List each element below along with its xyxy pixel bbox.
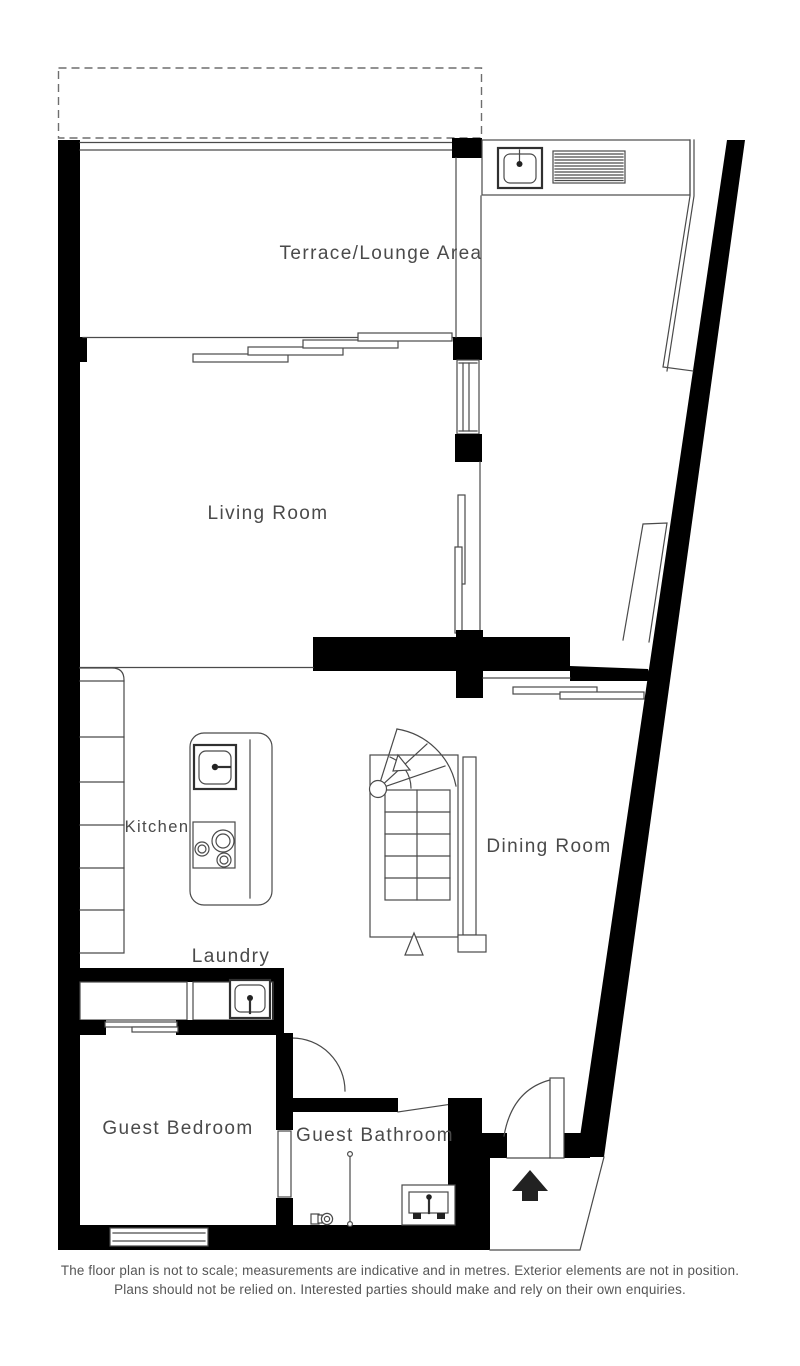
vestibule-outline — [490, 1157, 604, 1250]
balustrade-end-post — [452, 138, 482, 158]
sink-icon — [230, 980, 270, 1018]
wardrobe-outline — [80, 982, 187, 1020]
guest-bedroom: Guest Bedroom — [102, 1033, 293, 1246]
wall-tab — [80, 337, 87, 362]
pocket-door-leaf — [278, 1131, 291, 1197]
toilet-icon — [311, 1213, 333, 1224]
disclaimer: The floor plan is not to scale; measurem… — [0, 1262, 800, 1299]
mid-wall-column — [456, 630, 483, 698]
grill-icon — [553, 151, 625, 183]
mid-walls — [80, 523, 667, 699]
guest-bedroom-label: Guest Bedroom — [102, 1118, 253, 1139]
door-swing-arc — [504, 1080, 550, 1136]
bathroom-top-wall — [288, 1098, 398, 1112]
hallway — [292, 1038, 345, 1091]
sliding-door-panels — [513, 687, 644, 699]
winder-staircase — [370, 729, 487, 955]
living-room-label: Living Room — [207, 503, 328, 524]
disclaimer-line-2: Plans should not be relied on. Intereste… — [0, 1281, 800, 1300]
floor-plan-page: Terrace/Lounge Area Living Ro — [0, 0, 800, 1366]
stair-rail-foot — [458, 935, 486, 952]
winder-arc — [397, 729, 456, 786]
sink-icon — [498, 148, 542, 188]
kitchen-label: Kitchen — [125, 818, 190, 836]
guest-bathroom: Guest Bathroom — [288, 1098, 482, 1226]
dining-room: Dining Room — [370, 729, 612, 955]
laundry-label: Laundry — [192, 946, 270, 967]
kitchen: Kitchen — [80, 668, 272, 953]
wardrobe-sliding-doors — [105, 1022, 178, 1032]
wardrobe-bottom-wall — [58, 1020, 106, 1035]
entry-left-wall — [470, 1158, 490, 1250]
laundry: Laundry — [58, 946, 284, 1035]
terrace-label: Terrace/Lounge Area — [280, 243, 483, 264]
wall-block — [455, 434, 482, 462]
disclaimer-line-1: The floor plan is not to scale; measurem… — [0, 1262, 800, 1281]
wall-block — [453, 337, 482, 360]
entry-door-leaf — [550, 1078, 564, 1158]
window — [457, 360, 479, 434]
kitchen-counter-divisions — [80, 681, 124, 910]
terrace-dashed-boundary — [59, 68, 482, 138]
entrance-arrow-up-icon — [512, 1170, 548, 1201]
floor-plan-drawing: Terrace/Lounge Area Living Ro — [0, 0, 800, 1260]
shower-rail-icon — [348, 1152, 353, 1227]
door-swing-arc — [292, 1038, 345, 1091]
sink-icon — [194, 745, 236, 789]
entry-wall-block — [470, 1133, 507, 1158]
hob-3-burner-icon — [193, 822, 235, 868]
living-room: Living Room — [80, 158, 482, 637]
mid-wall-band-right — [570, 666, 652, 681]
window — [110, 1228, 208, 1246]
wardrobe-bottom-wall — [176, 1020, 284, 1035]
bedroom-bathroom-divider — [276, 1198, 293, 1228]
entry-wall-block — [562, 1133, 590, 1158]
vanity-basin-icon — [402, 1185, 455, 1225]
sliding-door-panels — [455, 495, 465, 633]
terrace-area: Terrace/Lounge Area — [59, 68, 695, 371]
newel-post — [370, 781, 387, 798]
laundry-right-wall — [272, 982, 284, 1022]
mid-wall-band — [313, 637, 570, 671]
kitchen-island — [190, 733, 272, 905]
terrace-glass-edge — [663, 140, 693, 371]
winder-rays — [378, 729, 445, 789]
stair-rail — [463, 757, 476, 935]
dining-room-label: Dining Room — [486, 836, 611, 857]
entrance — [470, 1078, 604, 1250]
right-slanted-wall — [577, 140, 745, 1157]
guest-bathroom-label: Guest Bathroom — [296, 1125, 454, 1146]
stair-direction-arrow — [393, 755, 410, 771]
stair-up-arrow — [405, 933, 423, 955]
bedroom-bathroom-divider — [276, 1033, 293, 1130]
angled-wall-line — [398, 1104, 452, 1112]
left-wall — [58, 140, 80, 1250]
